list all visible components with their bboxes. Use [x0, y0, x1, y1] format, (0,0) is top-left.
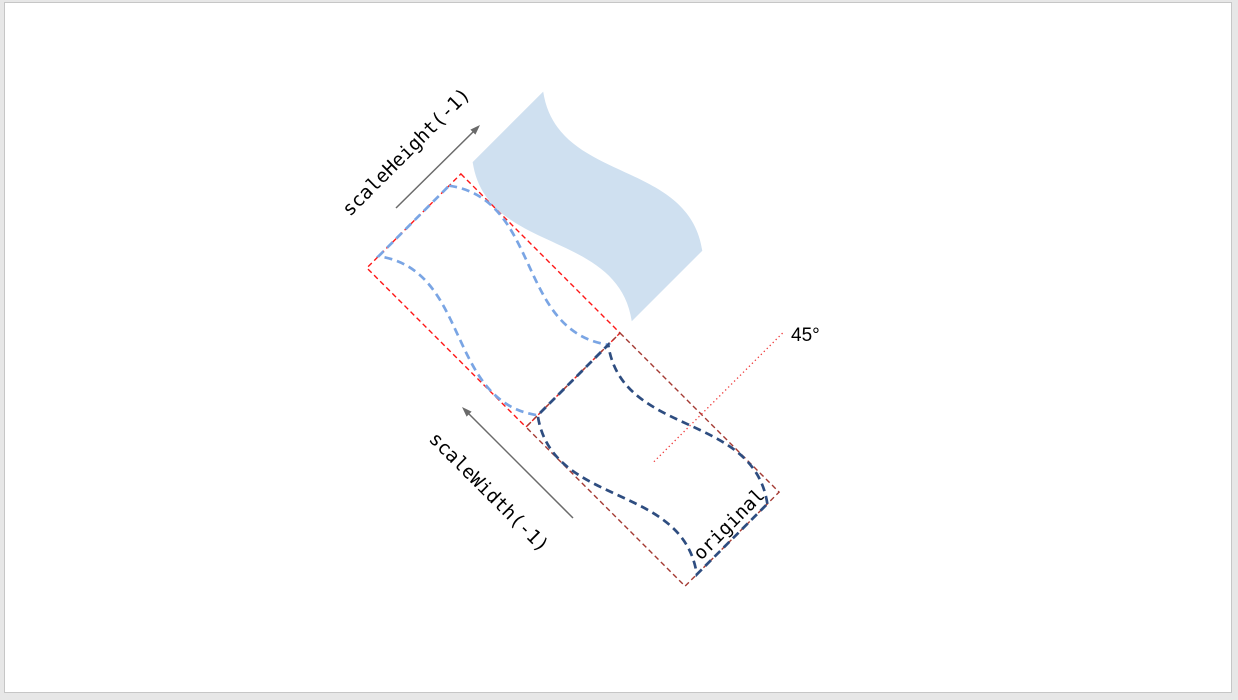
- angle-label: 45°: [791, 325, 820, 346]
- screenshot-stage: scaleHeight(-1) scaleWidth(-1) original …: [0, 0, 1238, 700]
- slide-surface: [5, 3, 1232, 693]
- diagram-canvas: scaleHeight(-1) scaleWidth(-1) original …: [0, 0, 1238, 700]
